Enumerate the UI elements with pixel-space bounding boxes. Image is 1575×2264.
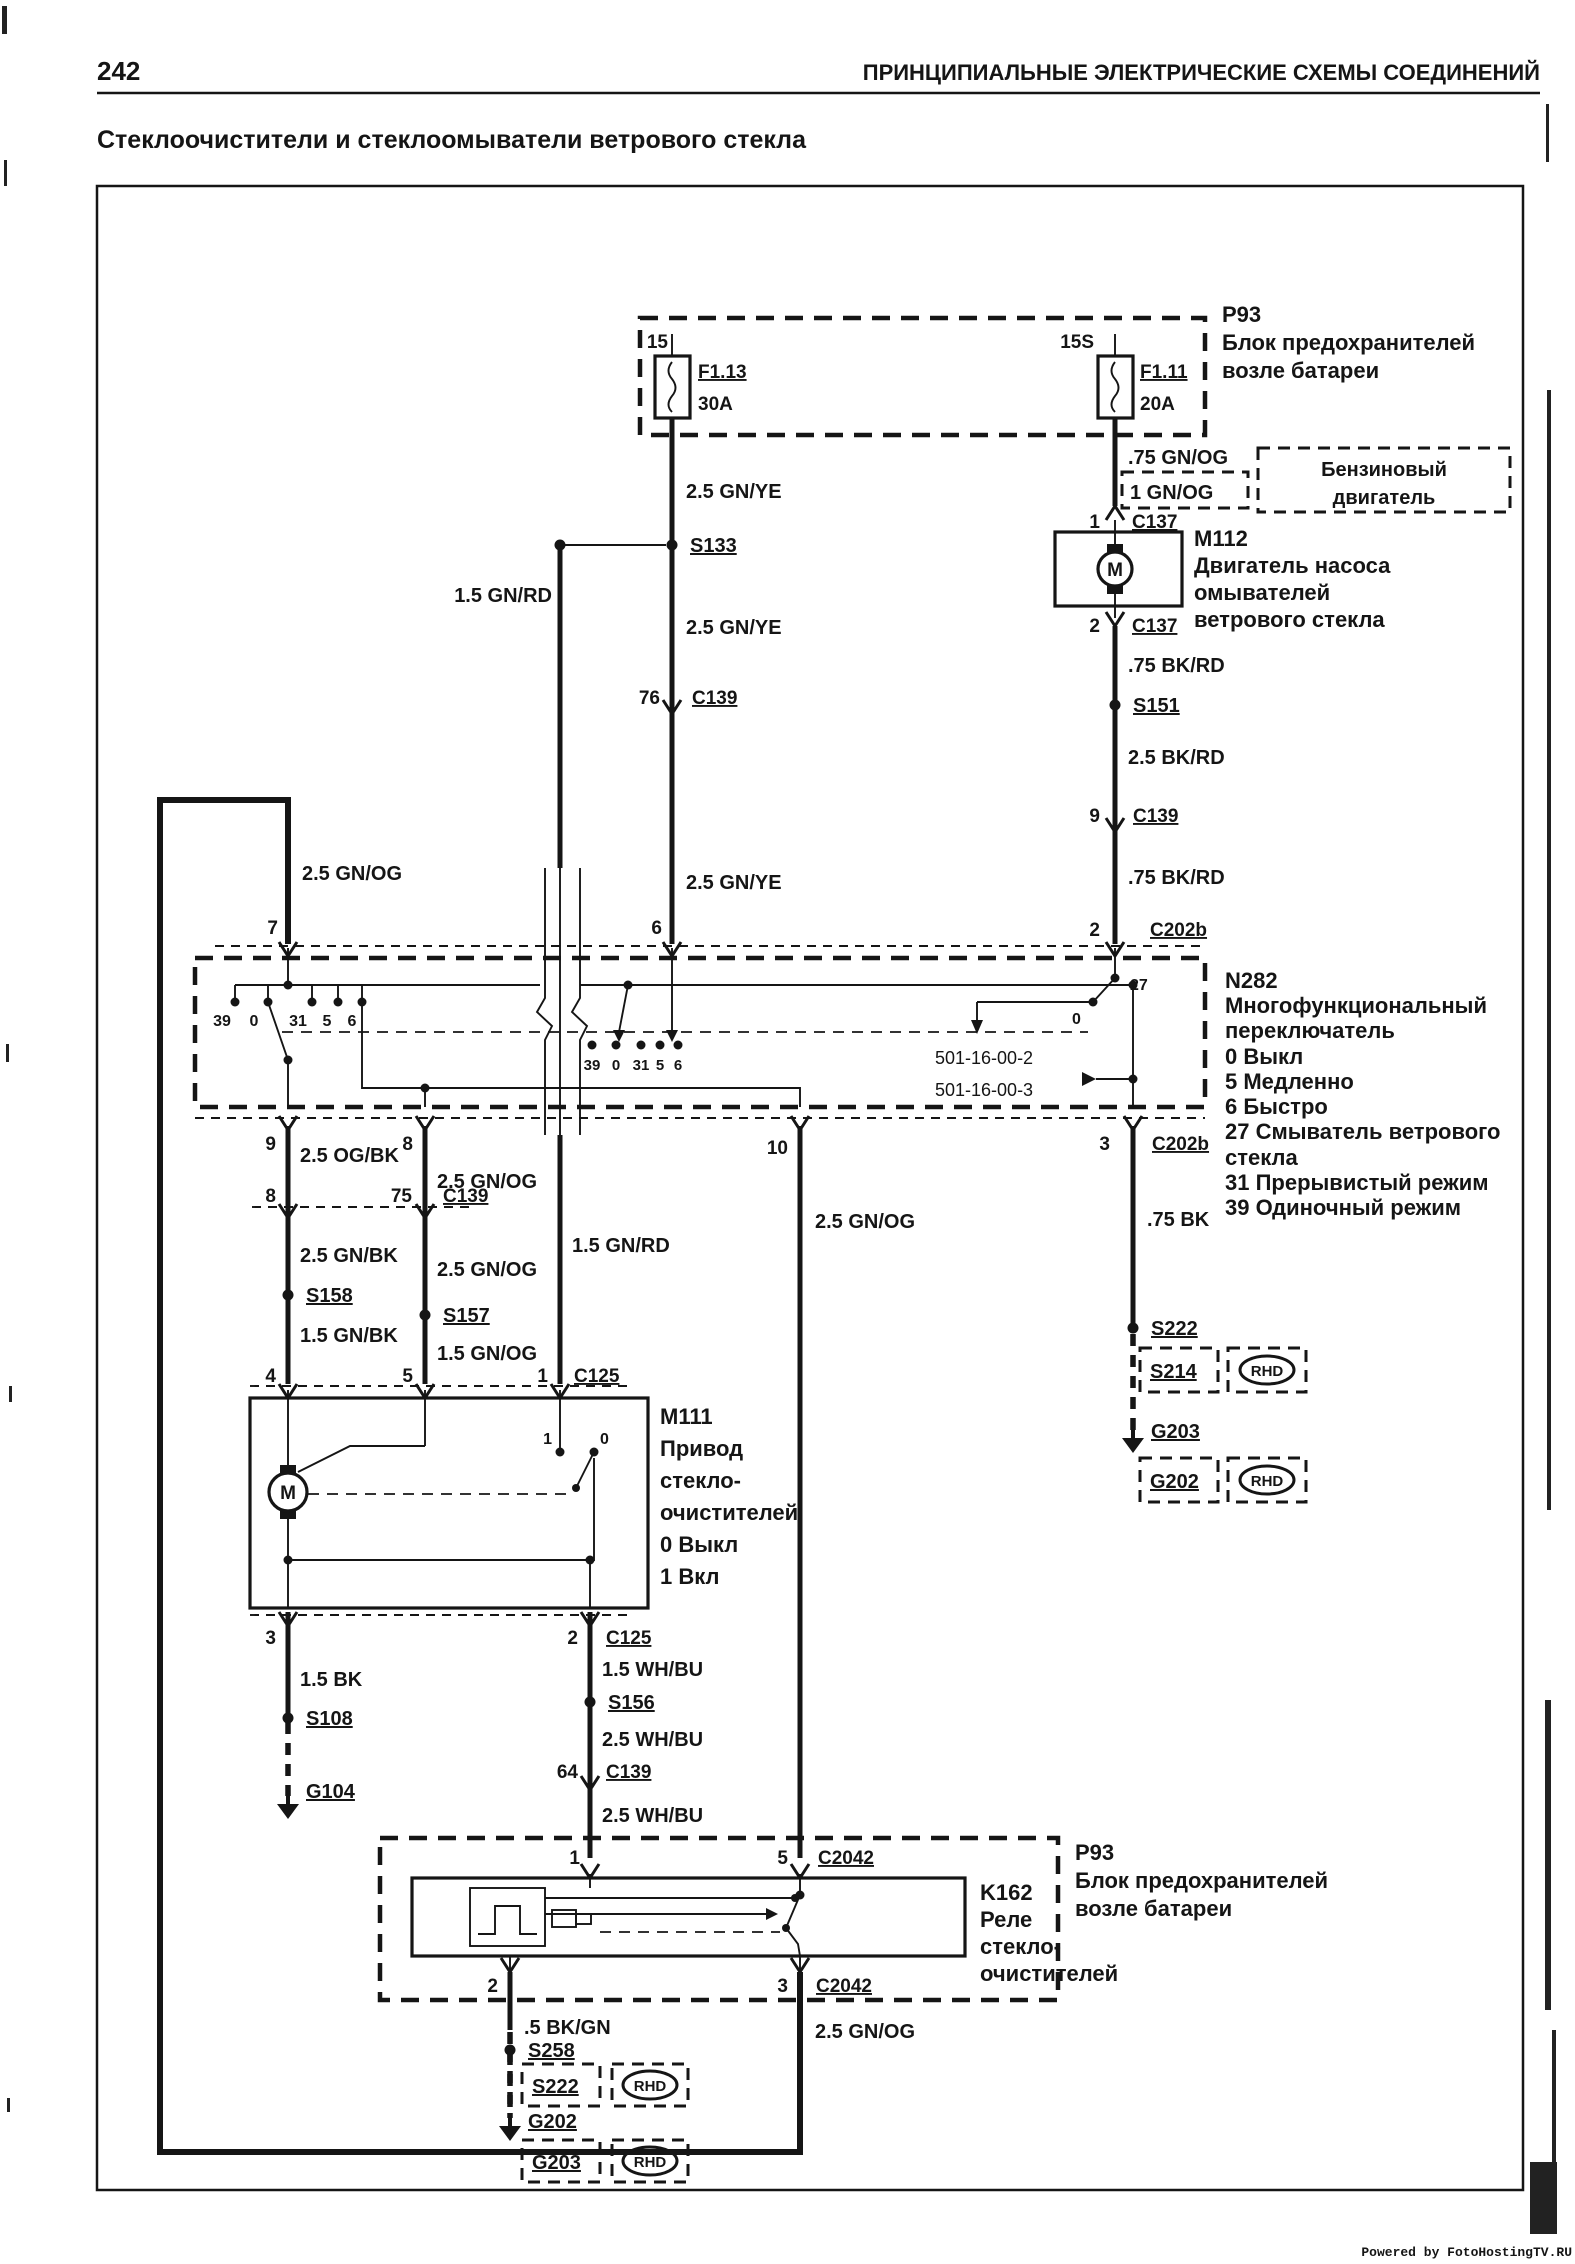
box-break-2 bbox=[572, 868, 587, 1135]
rhd-label-4: RHD bbox=[634, 2154, 667, 2171]
contact-6r: 6 bbox=[674, 1057, 682, 1074]
c202b-name-bot: C202b bbox=[1152, 1134, 1209, 1155]
splice-s222b: S222 bbox=[532, 2076, 579, 2098]
m111-id: M111 bbox=[660, 1404, 713, 1429]
fuse1-pin: 15 bbox=[647, 332, 669, 353]
contact-0l: 0 bbox=[250, 1013, 259, 1030]
c2042-pin1: 1 bbox=[569, 1848, 580, 1869]
contact-6l: 6 bbox=[348, 1013, 357, 1030]
wire-bkrd075-2: .75 BK/RD bbox=[1128, 867, 1225, 889]
fuse1-name: F1.13 bbox=[698, 362, 747, 383]
wire-gnog-out: 2.5 GN/OG bbox=[815, 2021, 915, 2043]
c125-pin5: 5 bbox=[402, 1366, 413, 1387]
wire-gnrd-1: 1.5 GN/RD bbox=[454, 585, 552, 607]
switch-pin10: 10 bbox=[767, 1138, 788, 1159]
n282-l6: 27 Смыватель ветрового bbox=[1225, 1119, 1500, 1144]
gnrd-junction-dot bbox=[555, 540, 566, 551]
c2042-pin2: 2 bbox=[487, 1976, 498, 1997]
n282-l3: 0 Выкл bbox=[1225, 1044, 1303, 1069]
k162-l3: очистителей bbox=[980, 1961, 1118, 1986]
rhd-label-3: RHD bbox=[634, 2078, 667, 2095]
engine-note: .75 GN/OG 1 GN/OG Бензиновый двигатель bbox=[1122, 447, 1510, 512]
washer-pump-m112: 1 C137 M M112 Двигатель насоса омывателе… bbox=[1055, 506, 1391, 637]
fuse-box-p93: 15 F1.13 30A 15S F1.11 20A P93 Блок пред… bbox=[640, 302, 1475, 435]
switch-pin8: 8 bbox=[402, 1134, 413, 1155]
wire-bkgn: .5 BK/GN bbox=[524, 2017, 611, 2039]
c2042-pin3: 3 bbox=[777, 1976, 788, 1997]
k162-l1: Реле bbox=[980, 1907, 1032, 1932]
contact-31l: 31 bbox=[289, 1013, 307, 1030]
c202b-name-top: C202b bbox=[1150, 920, 1207, 941]
wire-gnog-e: 2.5 GN/OG bbox=[815, 1211, 915, 1233]
splice-s258: S258 bbox=[528, 2040, 575, 2062]
box-break-1 bbox=[537, 868, 552, 1135]
wire-label-gnye-2: 2.5 GN/YE bbox=[686, 617, 782, 639]
ground-g203b: G203 bbox=[532, 2152, 581, 2174]
splice-s222r: S222 bbox=[1151, 1318, 1198, 1340]
wire-whbu25-1: 2.5 WH/BU bbox=[602, 1729, 703, 1751]
m112-motor-letter: M bbox=[1107, 560, 1123, 581]
g202-chain: .5 BK/GN S258 S222 RHD G202 G203 RHD bbox=[499, 2017, 688, 2182]
splice-s156-dot bbox=[585, 1697, 596, 1708]
switch-contacts-left: 39 0 31 5 6 bbox=[213, 985, 366, 1030]
k162-id: K162 bbox=[980, 1880, 1033, 1905]
relay-box-id: P93 bbox=[1075, 1840, 1114, 1865]
c125-pin3: 3 bbox=[265, 1628, 276, 1649]
n282-l2: переключатель bbox=[1225, 1018, 1395, 1043]
manual-page: 242 ПРИНЦИПИАЛЬНЫЕ ЭЛЕКТРИЧЕСКИЕ СХЕМЫ С… bbox=[0, 0, 1575, 2264]
col-bk075: .75 BK S222 S214 RHD G203 G202 RHD bbox=[1122, 1209, 1306, 1502]
ground-icon-g104 bbox=[277, 1796, 299, 1819]
c202b-pin3: 3 bbox=[1099, 1134, 1110, 1155]
wire-bkrd25: 2.5 BK/RD bbox=[1128, 747, 1225, 769]
wire-gnbk25: 2.5 GN/BK bbox=[300, 1245, 398, 1267]
contact-0w: 0 bbox=[1072, 1011, 1081, 1028]
wire-label-gnye-3: 2.5 GN/YE bbox=[686, 872, 782, 894]
m111-l1: Привод bbox=[660, 1436, 743, 1461]
fuse2-pin: 15S bbox=[1060, 332, 1094, 353]
c139-pin76: 76 bbox=[639, 688, 660, 709]
c125-name-top: C125 bbox=[574, 1366, 620, 1387]
c139-name-76: C139 bbox=[692, 688, 737, 709]
m111-box bbox=[250, 1398, 648, 1608]
c139-name-64: C139 bbox=[606, 1762, 651, 1783]
m112-chain: .75 BK/RD S151 2.5 BK/RD 9 C139 .75 BK/R… bbox=[1089, 655, 1224, 941]
wire-whbu15: 1.5 WH/BU bbox=[602, 1659, 703, 1681]
c125-name-bot: C125 bbox=[606, 1628, 652, 1649]
splice-s157: S157 bbox=[443, 1305, 490, 1327]
contact-39r: 39 bbox=[584, 1057, 601, 1074]
ground-icon-g202 bbox=[499, 2118, 521, 2141]
splice-s133-dot bbox=[667, 540, 678, 551]
c125-pin2: 2 bbox=[567, 1628, 578, 1649]
m111-l2: стекло- bbox=[660, 1468, 741, 1493]
washer-arm bbox=[1093, 978, 1115, 1002]
fusebox-desc2: возле батареи bbox=[1222, 358, 1379, 383]
ground-icon-g203 bbox=[1122, 1430, 1144, 1453]
c137-name-1: C137 bbox=[1132, 512, 1177, 533]
contact-5l: 5 bbox=[323, 1013, 332, 1030]
c202b-pin2: 2 bbox=[1089, 920, 1100, 941]
splice-s156: S156 bbox=[608, 1692, 655, 1714]
switch-arm-right bbox=[619, 985, 628, 1032]
splice-s222r-dot bbox=[1128, 1323, 1139, 1334]
m111-motor-letter: M bbox=[280, 1483, 296, 1504]
n282-id: N282 bbox=[1225, 968, 1278, 993]
splice-s157-dot bbox=[420, 1310, 431, 1321]
n282-legend: N282 Многофункциональный переключатель 0… bbox=[1225, 968, 1500, 1220]
n282-l9: 39 Одиночный режим bbox=[1225, 1195, 1461, 1220]
m112-desc3: ветрового стекла bbox=[1194, 607, 1385, 632]
wiring-diagram: 242 ПРИНЦИПИАЛЬНЫЕ ЭЛЕКТРИЧЕСКИЕ СХЕМЫ С… bbox=[0, 0, 1575, 2264]
fusebox-id: P93 bbox=[1222, 302, 1261, 327]
switch-n282: 7 6 39 0 31 5 6 bbox=[195, 868, 1209, 1159]
switch-pin7: 7 bbox=[267, 918, 278, 939]
wire-bk075: .75 BK bbox=[1147, 1209, 1210, 1231]
contact-39l: 39 bbox=[213, 1013, 231, 1030]
wire-label-gnye-1: 2.5 GN/YE bbox=[686, 481, 782, 503]
c139-name-9: C139 bbox=[1133, 806, 1178, 827]
splice-s133: S133 bbox=[690, 535, 737, 557]
c137-pin1: 1 bbox=[1089, 512, 1100, 533]
splice-s214: S214 bbox=[1150, 1361, 1198, 1383]
c2042-name-bot: C2042 bbox=[816, 1976, 872, 1997]
header-title: ПРИНЦИПИАЛЬНЫЕ ЭЛЕКТРИЧЕСКИЕ СХЕМЫ СОЕДИ… bbox=[863, 60, 1540, 85]
m112-desc2: омывателей bbox=[1194, 580, 1330, 605]
switch-contacts-right: 39 0 31 5 6 bbox=[584, 1041, 683, 1075]
c125-pin1: 1 bbox=[537, 1366, 548, 1387]
ground-g104: G104 bbox=[306, 1781, 356, 1803]
n282-l5: 6 Быстро bbox=[1225, 1094, 1328, 1119]
page-number: 242 bbox=[97, 56, 140, 86]
wire-gnog15: 1.5 GN/OG bbox=[437, 1343, 537, 1365]
wire-75gnog: .75 GN/OG bbox=[1128, 447, 1228, 469]
page-header: 242 ПРИНЦИПИАЛЬНЫЕ ЭЛЕКТРИЧЕСКИЕ СХЕМЫ С… bbox=[97, 56, 1540, 154]
fuse-f111: 15S F1.11 20A bbox=[1060, 332, 1188, 418]
relay-box-p93: P93 Блок предохранителей возле батареи 1… bbox=[380, 1838, 1328, 2000]
k162-l2: стекло- bbox=[980, 1934, 1061, 1959]
fuse2-name: F1.11 bbox=[1140, 362, 1188, 383]
wire-gnbk15: 1.5 GN/BK bbox=[300, 1325, 398, 1347]
rhd-label-1: RHD bbox=[1251, 1363, 1284, 1380]
n282-l4: 5 Медленно bbox=[1225, 1069, 1354, 1094]
rhd-label-2: RHD bbox=[1251, 1473, 1284, 1490]
relay-box-desc2: возле батареи bbox=[1075, 1896, 1232, 1921]
wiper-motor-m111: 4 5 1 C125 1 0 M M111 Привод стекло- очи… bbox=[250, 1366, 798, 1649]
ground-g202r: G202 bbox=[1150, 1471, 1199, 1493]
splice-s108-dot bbox=[283, 1713, 294, 1724]
wire-ogbk: 2.5 OG/BK bbox=[300, 1145, 399, 1167]
c139-pin9: 9 bbox=[1089, 806, 1100, 827]
wire-whbu25-2: 2.5 WH/BU bbox=[602, 1805, 703, 1827]
m111-l4: 0 Выкл bbox=[660, 1532, 738, 1557]
m111-l3: очистителей bbox=[660, 1500, 798, 1525]
c2042-name-top: C2042 bbox=[818, 1848, 874, 1869]
n282-l8: 31 Прерывистый режим bbox=[1225, 1170, 1489, 1195]
ground-g203r: G203 bbox=[1151, 1421, 1200, 1443]
fuse-f113: 15 F1.13 30A bbox=[647, 332, 747, 418]
contact-5r: 5 bbox=[656, 1057, 664, 1074]
gnye-chain: S133 2.5 GN/YE 76 C139 2.5 GN/YE 1.5 GN/… bbox=[454, 535, 781, 894]
m112-desc1: Двигатель насоса bbox=[1194, 553, 1391, 578]
splice-s151: S151 bbox=[1133, 695, 1180, 717]
wire-gnog-b2: 2.5 GN/OG bbox=[437, 1259, 537, 1281]
contact-0r: 0 bbox=[612, 1057, 620, 1074]
relay-box-desc1: Блок предохранителей bbox=[1075, 1868, 1328, 1893]
m111-contact0: 0 bbox=[600, 1431, 609, 1448]
c139-pin64: 64 bbox=[557, 1762, 579, 1783]
m111-contact1: 1 bbox=[543, 1431, 552, 1448]
wire-gnog-pin7: 2.5 GN/OG bbox=[302, 863, 402, 885]
fuse2-rating: 20A bbox=[1140, 394, 1175, 415]
c2042-pin5: 5 bbox=[777, 1848, 788, 1869]
splice-s108: S108 bbox=[306, 1708, 353, 1730]
splice-s158-dot bbox=[283, 1290, 294, 1301]
watermark: Powered by FotoHostingTV.RU bbox=[1361, 2245, 1572, 2260]
contact-31r: 31 bbox=[633, 1057, 650, 1074]
c139-pin8: 8 bbox=[265, 1186, 276, 1207]
n282-l1: Многофункциональный bbox=[1225, 993, 1487, 1018]
splice-s151-dot bbox=[1110, 700, 1121, 711]
c125-pin4: 4 bbox=[265, 1366, 276, 1387]
switch-pin6: 6 bbox=[651, 918, 662, 939]
wire-1gnog: 1 GN/OG bbox=[1130, 482, 1213, 504]
c139-pin75: 75 bbox=[391, 1186, 413, 1207]
petrol-line1: Бензиновый bbox=[1321, 459, 1447, 481]
fuse1-rating: 30A bbox=[698, 394, 733, 415]
wire-gnrd-2: 1.5 GN/RD bbox=[572, 1235, 670, 1257]
ref-501-2: 501-16-00-2 bbox=[935, 1048, 1033, 1068]
c137-pin2: 2 bbox=[1089, 616, 1100, 637]
c137-name-2: C137 bbox=[1132, 616, 1177, 637]
switch-arm-left bbox=[268, 1002, 288, 1060]
wire-bkrd075-1: .75 BK/RD bbox=[1128, 655, 1225, 677]
whbu-chain: 1.5 WH/BU S156 2.5 WH/BU 64 C139 2.5 WH/… bbox=[557, 1659, 703, 1827]
m111-l5: 1 Вкл bbox=[660, 1564, 720, 1589]
petrol-line2: двигатель bbox=[1333, 487, 1436, 509]
n282-l7: стекла bbox=[1225, 1145, 1299, 1170]
m112-id: M112 bbox=[1194, 526, 1248, 551]
diagram-title: Стеклоочистители и стеклоомыватели ветро… bbox=[97, 126, 807, 154]
ground-g202b: G202 bbox=[528, 2111, 577, 2133]
switch-pin9: 9 bbox=[265, 1134, 276, 1155]
fusebox-desc1: Блок предохранителей bbox=[1222, 330, 1475, 355]
ref-501-3: 501-16-00-3 bbox=[935, 1080, 1033, 1100]
wire-bk15: 1.5 BK bbox=[300, 1669, 363, 1691]
wire-gnog-b1: 2.5 GN/OG bbox=[437, 1171, 537, 1193]
splice-s158: S158 bbox=[306, 1285, 353, 1307]
